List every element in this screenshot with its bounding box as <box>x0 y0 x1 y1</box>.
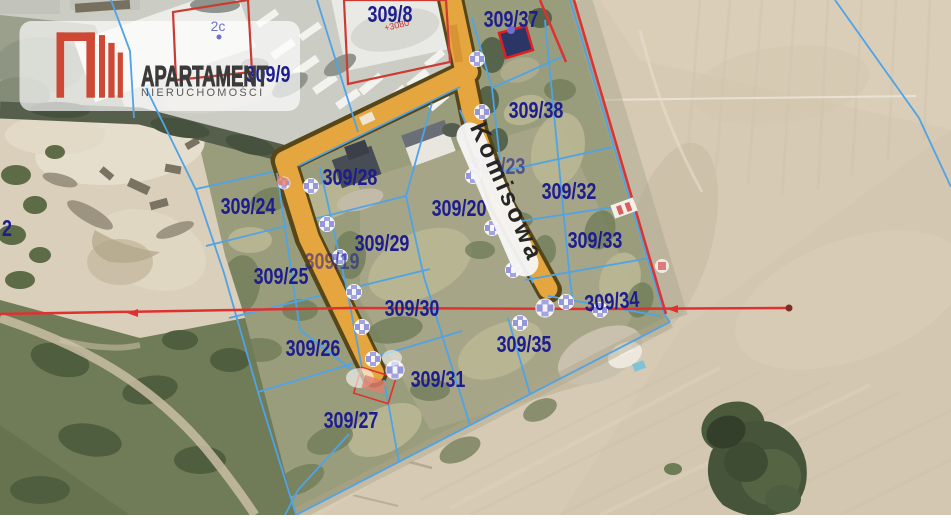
svg-text:NIERUCHOMOŚCI: NIERUCHOMOŚCI <box>141 86 264 99</box>
svg-text:309/29: 309/29 <box>355 231 410 257</box>
svg-text:309/35: 309/35 <box>497 332 552 358</box>
svg-text:2c: 2c <box>211 18 226 34</box>
svg-text:309/20: 309/20 <box>432 196 487 222</box>
svg-text:309/27: 309/27 <box>324 408 379 434</box>
svg-text:309/33: 309/33 <box>568 228 623 254</box>
svg-text:2: 2 <box>2 216 12 242</box>
svg-text:309/31: 309/31 <box>411 367 466 393</box>
svg-text:309/30: 309/30 <box>385 296 440 322</box>
svg-text:309/26: 309/26 <box>286 336 341 362</box>
svg-text:309/34: 309/34 <box>583 287 640 317</box>
svg-text:309/25: 309/25 <box>254 264 309 290</box>
svg-text:309/38: 309/38 <box>509 98 564 124</box>
svg-text:309/24: 309/24 <box>221 194 276 220</box>
svg-text:309/8: 309/8 <box>368 2 413 28</box>
svg-text:309/32: 309/32 <box>542 179 597 205</box>
svg-text:309/28: 309/28 <box>323 165 378 191</box>
svg-text:309/37: 309/37 <box>484 7 539 33</box>
svg-text:309/19: 309/19 <box>305 249 360 275</box>
